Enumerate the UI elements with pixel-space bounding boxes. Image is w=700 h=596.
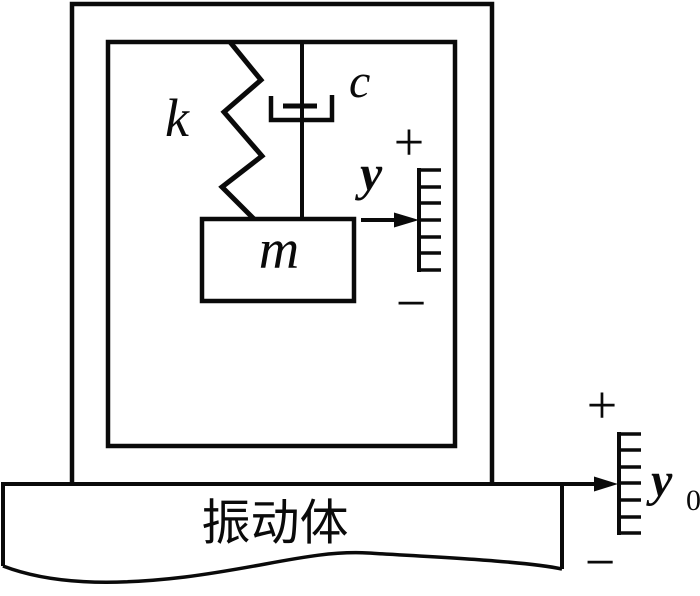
mass-label: m bbox=[259, 219, 299, 281]
base-scale-minus: − bbox=[585, 532, 615, 592]
base-displacement-label: y bbox=[646, 454, 673, 507]
diagram-canvas: k c m y + − 振动体 + bbox=[0, 0, 700, 596]
right-arrowhead-icon bbox=[594, 477, 618, 492]
base-wavy-edge bbox=[3, 553, 562, 583]
spring bbox=[222, 42, 262, 219]
right-arrowhead-icon bbox=[394, 213, 419, 228]
damper-label: c bbox=[349, 55, 370, 108]
base-scale-plus: + bbox=[587, 375, 617, 435]
mass-displacement-arrow bbox=[361, 213, 419, 228]
mass-scale-minus: − bbox=[396, 273, 426, 333]
mass-scale-plus: + bbox=[394, 112, 424, 172]
vibrating-body-label: 振动体 bbox=[201, 496, 348, 551]
base-scale-ticks bbox=[619, 434, 641, 533]
mass-scale-ticks bbox=[419, 170, 441, 270]
base-displacement-arrow bbox=[562, 477, 618, 492]
base-displacement-subscript: 0 bbox=[686, 484, 700, 517]
mass-displacement-label: y bbox=[355, 145, 383, 201]
spring-label: k bbox=[165, 88, 190, 148]
